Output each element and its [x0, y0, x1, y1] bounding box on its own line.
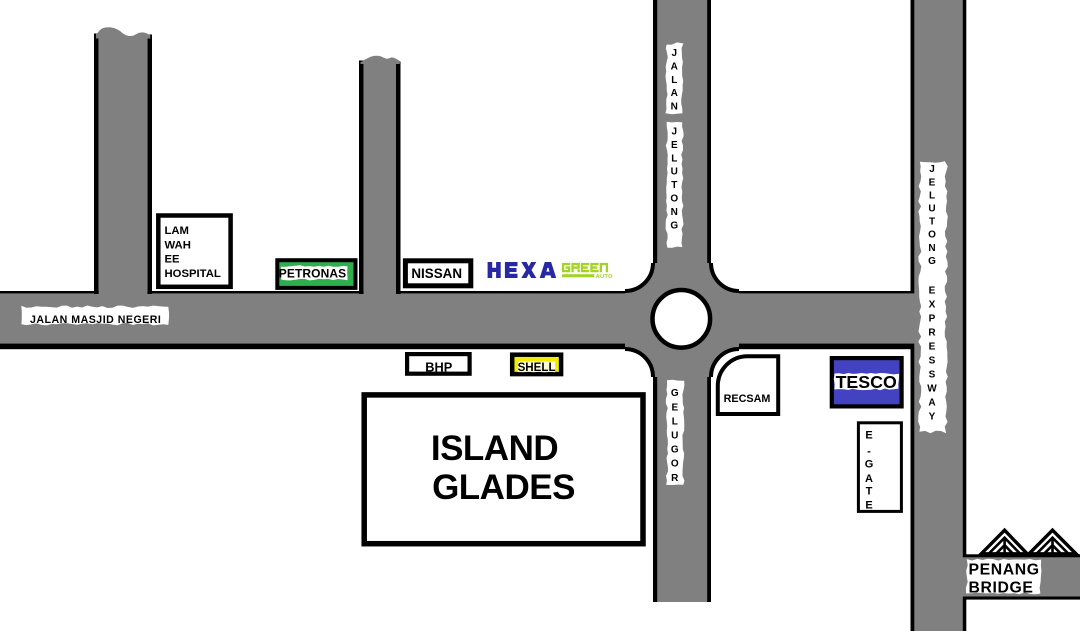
svg-text:-: -: [867, 445, 871, 457]
svg-text:A: A: [671, 62, 678, 73]
svg-text:E: E: [929, 177, 936, 188]
svg-text:E: E: [671, 140, 678, 151]
svg-text:PETRONAS: PETRONAS: [279, 266, 346, 280]
svg-text:GLADES: GLADES: [432, 468, 575, 507]
svg-text:HOSPITAL: HOSPITAL: [165, 268, 221, 280]
svg-text:O: O: [671, 459, 679, 470]
svg-text:X: X: [929, 299, 936, 310]
svg-text:WAH: WAH: [165, 239, 191, 251]
svg-text:J: J: [672, 48, 678, 59]
svg-text:SHELL: SHELL: [518, 361, 556, 374]
svg-text:G: G: [670, 220, 678, 231]
svg-text:BHP: BHP: [425, 360, 452, 375]
svg-text:L: L: [671, 75, 677, 86]
svg-text:T: T: [929, 217, 935, 228]
svg-text:E: E: [929, 285, 936, 296]
svg-text:G: G: [865, 459, 874, 471]
svg-text:L: L: [672, 416, 678, 427]
svg-text:U: U: [671, 431, 678, 442]
svg-text:J: J: [672, 127, 678, 138]
svg-text:A: A: [671, 88, 678, 99]
svg-text:G: G: [671, 388, 679, 399]
svg-text:PENANG: PENANG: [969, 561, 1040, 578]
svg-text:EE: EE: [165, 254, 181, 266]
svg-text:O: O: [928, 230, 936, 241]
svg-text:O: O: [670, 194, 678, 205]
svg-text:N: N: [928, 243, 935, 254]
svg-text:G: G: [671, 445, 679, 456]
svg-text:BRIDGE: BRIDGE: [969, 579, 1034, 596]
svg-text:R: R: [671, 473, 679, 484]
svg-text:U: U: [671, 167, 678, 178]
svg-text:TESCO: TESCO: [836, 372, 897, 392]
svg-text:S: S: [929, 355, 936, 366]
svg-text:R: R: [928, 327, 936, 338]
svg-text:S: S: [929, 369, 936, 380]
svg-text:RECSAM: RECSAM: [724, 393, 771, 405]
svg-text:T: T: [866, 486, 873, 498]
svg-text:W: W: [927, 383, 937, 394]
svg-text:U: U: [928, 204, 935, 215]
svg-text:NISSAN: NISSAN: [411, 266, 462, 281]
svg-text:Y: Y: [929, 411, 936, 422]
svg-text:E: E: [865, 500, 872, 512]
svg-text:LAM: LAM: [165, 225, 189, 237]
svg-text:T: T: [671, 180, 677, 191]
svg-text:A: A: [865, 473, 873, 485]
svg-text:P: P: [929, 313, 936, 324]
svg-text:AUTO: AUTO: [596, 274, 613, 280]
svg-text:G: G: [928, 256, 936, 267]
svg-text:E: E: [865, 430, 872, 442]
svg-text:A: A: [928, 397, 935, 408]
svg-text:E: E: [929, 341, 936, 352]
svg-text:L: L: [671, 153, 677, 164]
svg-text:JALAN MASJID NEGERI: JALAN MASJID NEGERI: [30, 314, 161, 326]
svg-text:ISLAND: ISLAND: [431, 429, 558, 468]
svg-text:E: E: [671, 402, 678, 413]
svg-text:L: L: [929, 190, 935, 201]
svg-text:N: N: [671, 207, 678, 218]
svg-text:J: J: [929, 164, 935, 175]
svg-text:N: N: [671, 102, 678, 113]
